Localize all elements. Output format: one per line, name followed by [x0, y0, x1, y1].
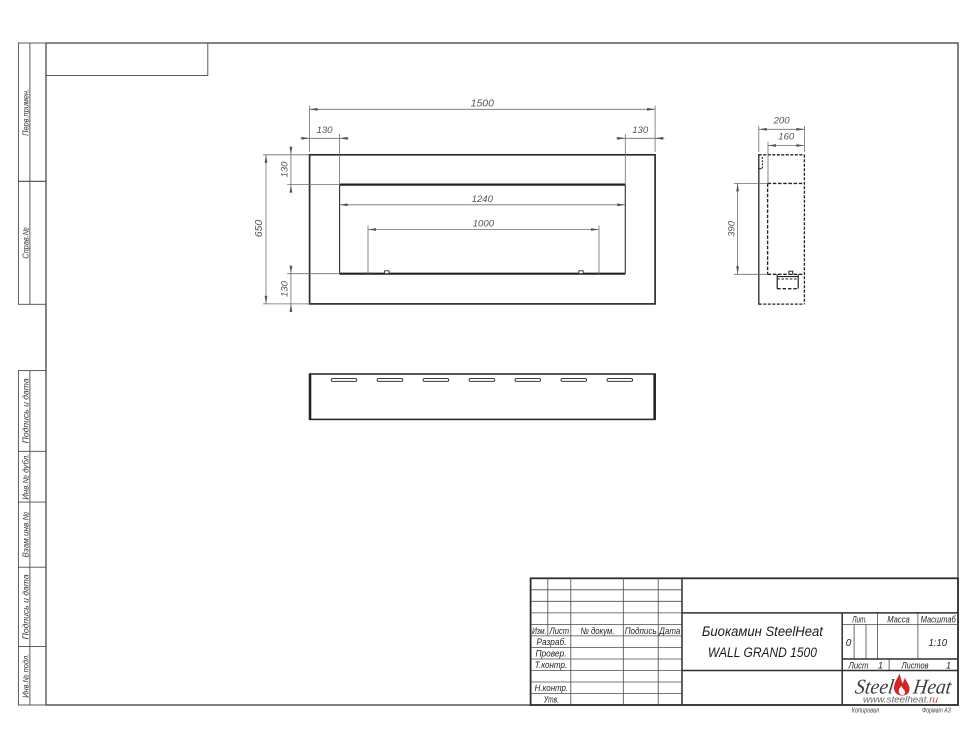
svg-text:Взам.инв.№: Взам.инв.№: [22, 511, 31, 557]
svg-text:1000: 1000: [473, 218, 495, 229]
svg-text:Инв.№ подл.: Инв.№ подл.: [22, 654, 31, 698]
svg-text:0: 0: [846, 638, 852, 649]
svg-text:№ докум.: № докум.: [581, 626, 615, 636]
svg-text:Подпись: Подпись: [625, 626, 657, 636]
svg-text:Дата: Дата: [658, 626, 680, 636]
svg-text:Лит.: Лит.: [852, 615, 867, 625]
svg-text:Лист: Лист: [549, 626, 570, 636]
svg-text:200: 200: [773, 115, 791, 126]
svg-text:Утв.: Утв.: [543, 695, 559, 705]
svg-text:Изм.: Изм.: [532, 626, 547, 636]
svg-text:Формат А3: Формат А3: [922, 706, 951, 715]
svg-text:Инв.№ дубл.: Инв.№ дубл.: [22, 454, 31, 500]
svg-text:Листов: Листов: [901, 661, 929, 671]
svg-text:130: 130: [316, 125, 333, 136]
svg-text:650: 650: [253, 220, 265, 238]
svg-text:Масштаб: Масштаб: [921, 615, 957, 625]
svg-text:Т.контр.: Т.контр.: [535, 660, 568, 670]
svg-text:Подпись и дата: Подпись и дата: [22, 378, 31, 444]
svg-text:160: 160: [778, 132, 795, 143]
svg-text:Справ.№: Справ.№: [22, 227, 31, 259]
svg-text:1:10: 1:10: [929, 638, 948, 649]
svg-text:390: 390: [727, 220, 738, 237]
svg-text:Подпись и дата: Подпись и дата: [22, 574, 31, 640]
svg-text:1240: 1240: [472, 194, 494, 205]
svg-text:1: 1: [946, 661, 951, 671]
svg-text:Биокамин SteelHeat: Биокамин SteelHeat: [702, 624, 824, 639]
svg-text:Лист: Лист: [848, 661, 869, 671]
svg-text:Масса: Масса: [887, 615, 910, 625]
svg-text:Н.контр.: Н.контр.: [535, 683, 569, 693]
svg-text:130: 130: [280, 161, 291, 178]
svg-text:WALL GRAND 1500: WALL GRAND 1500: [708, 645, 817, 660]
svg-text:Перв.примен.: Перв.примен.: [22, 89, 31, 136]
svg-text:1500: 1500: [471, 98, 495, 110]
svg-text:Копировал: Копировал: [852, 706, 880, 715]
svg-text:www.steelheat.ru: www.steelheat.ru: [863, 694, 938, 704]
svg-text:Провер.: Провер.: [536, 648, 567, 658]
svg-text:130: 130: [280, 280, 291, 297]
svg-text:1: 1: [878, 661, 883, 671]
svg-text:Разраб.: Разраб.: [537, 637, 567, 647]
svg-text:130: 130: [632, 125, 649, 136]
